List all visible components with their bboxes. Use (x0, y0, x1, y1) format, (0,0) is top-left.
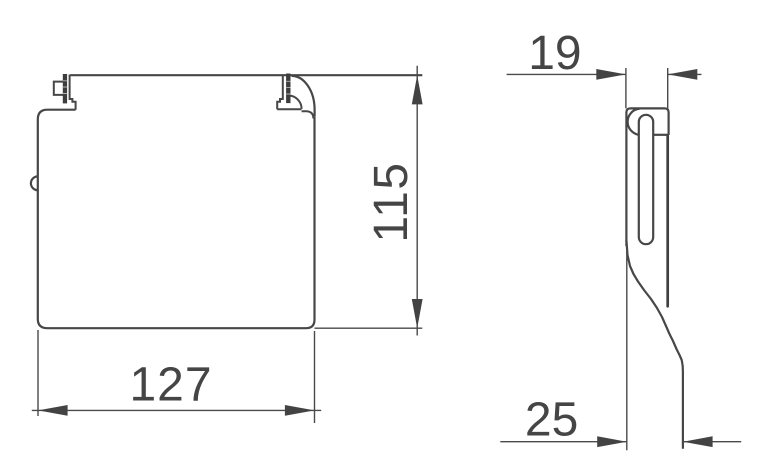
svg-text:25: 25 (525, 394, 578, 447)
svg-text:127: 127 (129, 359, 212, 412)
svg-text:19: 19 (528, 27, 581, 80)
svg-text:115: 115 (365, 161, 418, 242)
